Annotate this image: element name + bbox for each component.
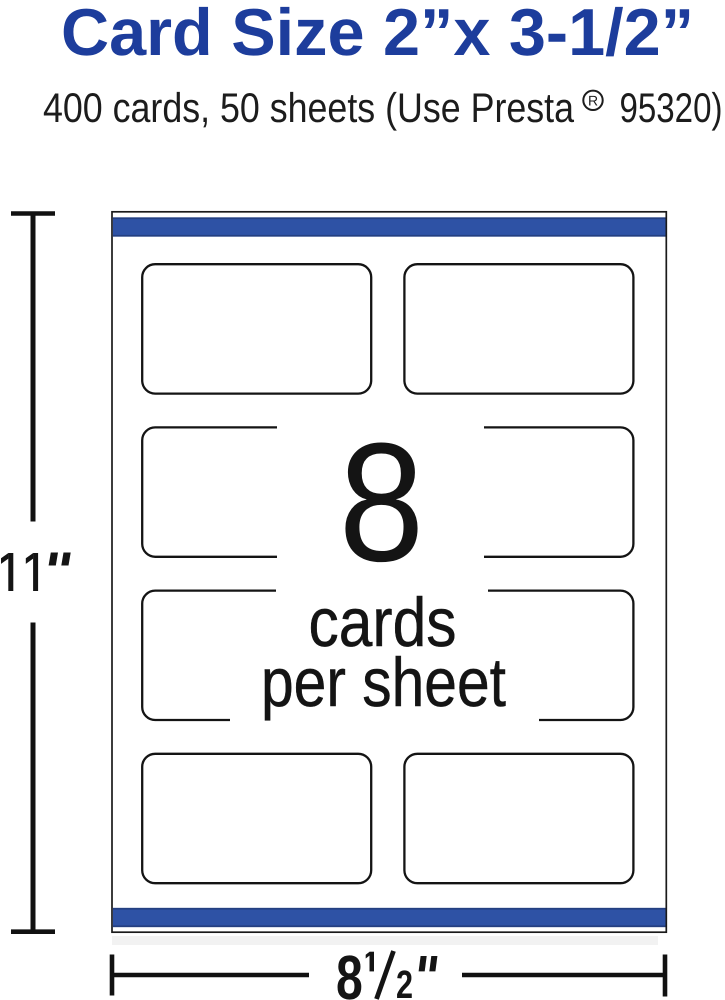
svg-text:95320): 95320) xyxy=(620,84,723,131)
svg-text:400 cards, 50 sheets (Use Pres: 400 cards, 50 sheets (Use Presta xyxy=(43,84,575,131)
svg-text:8: 8 xyxy=(336,943,363,1000)
svg-text:per sheet: per sheet xyxy=(261,644,506,721)
svg-text:Card Size 2”x 3-1/2”: Card Size 2”x 3-1/2” xyxy=(61,0,694,70)
svg-text:8: 8 xyxy=(339,408,425,597)
svg-text:R: R xyxy=(588,93,598,109)
svg-text:2: 2 xyxy=(396,963,413,1000)
